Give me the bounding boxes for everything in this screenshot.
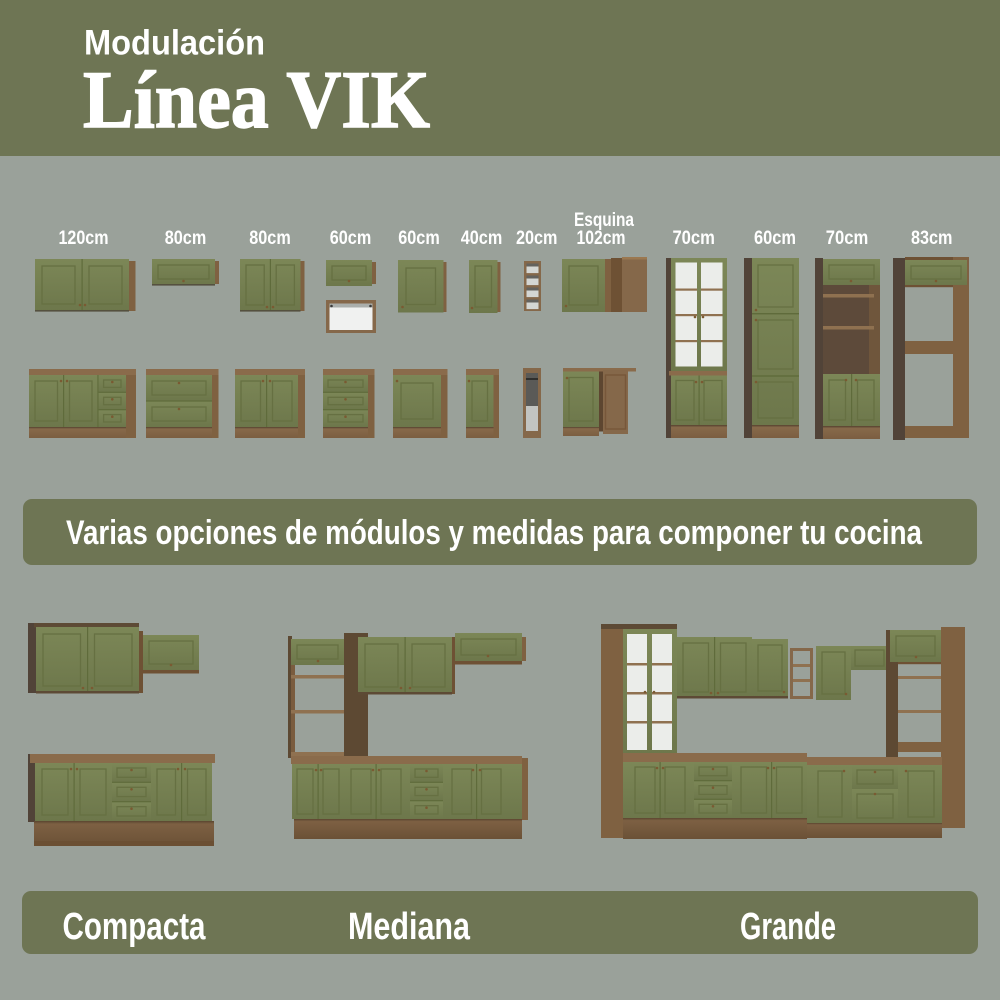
svg-text:Compacta: Compacta bbox=[63, 906, 207, 948]
svg-text:40cm: 40cm bbox=[461, 228, 503, 249]
svg-text:120cm: 120cm bbox=[59, 228, 109, 249]
svg-text:102cm: 102cm bbox=[577, 228, 626, 249]
svg-text:83cm: 83cm bbox=[911, 228, 953, 249]
svg-text:60cm: 60cm bbox=[398, 228, 440, 249]
svg-text:80cm: 80cm bbox=[249, 228, 291, 249]
svg-text:80cm: 80cm bbox=[165, 228, 207, 249]
svg-text:70cm: 70cm bbox=[826, 228, 869, 249]
svg-text:20cm: 20cm bbox=[516, 228, 558, 249]
svg-text:Mediana: Mediana bbox=[348, 906, 471, 948]
svg-text:Varias opciones de módulos y m: Varias opciones de módulos y medidas par… bbox=[66, 514, 923, 552]
svg-text:60cm: 60cm bbox=[754, 228, 796, 249]
svg-text:Línea VIK: Línea VIK bbox=[83, 54, 430, 145]
svg-text:60cm: 60cm bbox=[330, 228, 372, 249]
svg-text:Grande: Grande bbox=[740, 906, 836, 948]
svg-text:70cm: 70cm bbox=[672, 228, 715, 249]
